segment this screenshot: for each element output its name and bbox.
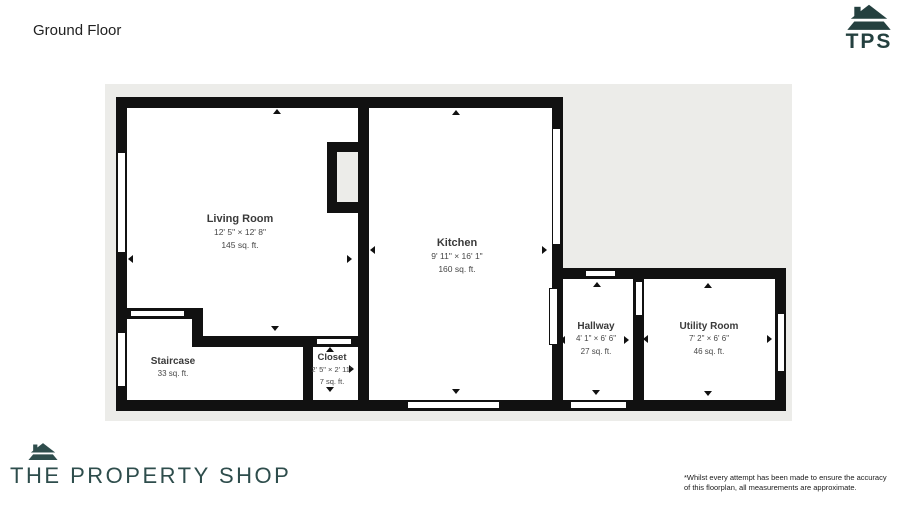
room-name: Utility Room: [649, 320, 769, 333]
wall-top: [116, 97, 563, 108]
room-area: 145 sq. ft.: [160, 239, 320, 252]
page-title: Ground Floor: [33, 22, 121, 39]
room-area: 33 sq. ft.: [113, 368, 233, 381]
room-dimensions: 7' 2" × 6' 6": [649, 333, 769, 346]
measure-arrow-down: [452, 389, 460, 394]
room-area: 46 sq. ft.: [649, 346, 769, 359]
disclaimer-line: of this floorplan, all measurements are …: [684, 483, 894, 493]
measure-arrow-right: [347, 255, 352, 263]
room-area: 7 sq. ft.: [292, 376, 372, 388]
room-dimensions: 4' 1" × 6' 6": [546, 333, 646, 346]
room-dimensions: 2' 5" × 2' 11": [292, 364, 372, 376]
staircase-label: Staircase 33 sq. ft.: [113, 355, 233, 381]
window-hallway-bottom: [570, 401, 627, 409]
measure-arrow-left: [370, 246, 375, 254]
tps-logo-text: TPS: [843, 32, 895, 52]
window-utility-right: [777, 313, 785, 372]
floor-plan: Living Room 12' 5" × 12' 8" 145 sq. ft. …: [105, 84, 792, 421]
chimney-void: [337, 152, 358, 202]
measure-arrow-right: [542, 246, 547, 254]
kitchen-label: Kitchen 9' 11" × 16' 1" 160 sq. ft.: [377, 236, 537, 276]
measure-arrow-up: [704, 283, 712, 288]
measure-arrow-down: [592, 390, 600, 395]
measure-arrow-up: [273, 109, 281, 114]
property-shop-logo-text: THE PROPERTY SHOP: [10, 463, 291, 489]
room-area: 160 sq. ft.: [377, 263, 537, 276]
window-staircase-top: [130, 310, 185, 317]
door-kitchen-bottom: [407, 401, 500, 409]
closet-label: Closet 2' 5" × 2' 11" 7 sq. ft.: [292, 351, 372, 388]
room-name: Hallway: [546, 320, 646, 333]
door-hallway-utility: [635, 281, 643, 316]
room-name: Staircase: [113, 355, 233, 368]
house-icon: [846, 4, 892, 32]
room-name: Closet: [292, 351, 372, 364]
window-livingroom-left: [117, 152, 126, 253]
measure-arrow-left: [128, 255, 133, 263]
measure-arrow-down: [704, 391, 712, 396]
room-dimensions: 12' 5" × 12' 8": [160, 226, 320, 239]
utility-room-label: Utility Room 7' 2" × 6' 6" 46 sq. ft.: [649, 320, 769, 358]
room-area: 27 sq. ft.: [546, 346, 646, 359]
window-closet-top: [316, 338, 352, 345]
disclaimer: *Whilst every attempt has been made to e…: [684, 473, 894, 492]
window-hallway-top: [585, 270, 616, 277]
measure-arrow-up: [593, 282, 601, 287]
measure-arrow-down: [271, 326, 279, 331]
disclaimer-line: *Whilst every attempt has been made to e…: [684, 473, 894, 483]
room-name: Living Room: [160, 212, 320, 226]
room-name: Kitchen: [377, 236, 537, 250]
hallway-label: Hallway 4' 1" × 6' 6" 27 sq. ft.: [546, 320, 646, 358]
tps-logo: TPS: [843, 4, 895, 52]
house-icon: [28, 442, 58, 462]
measure-arrow-up: [452, 110, 460, 115]
room-dimensions: 9' 11" × 16' 1": [377, 250, 537, 263]
window-kitchen-right: [552, 128, 561, 245]
living-room-label: Living Room 12' 5" × 12' 8" 145 sq. ft.: [160, 212, 320, 252]
